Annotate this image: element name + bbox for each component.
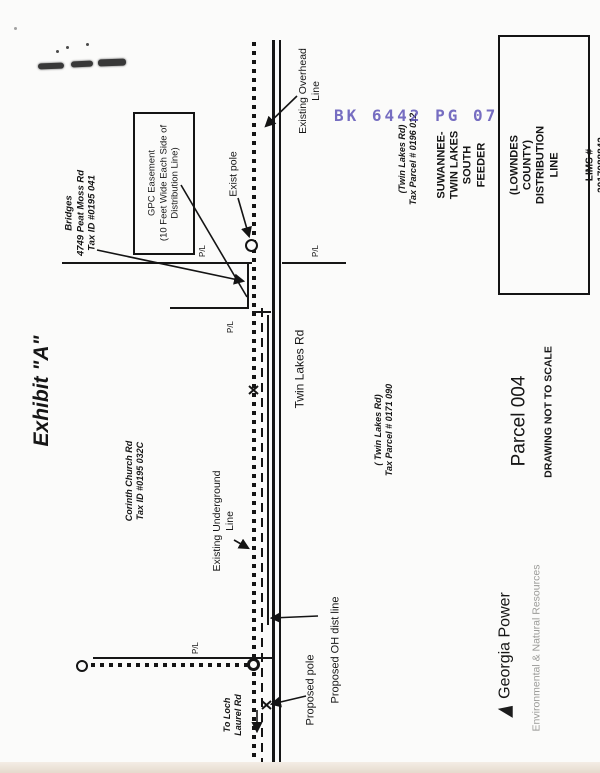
scale-note-label: DRAWING NOT TO SCALE — [543, 346, 556, 478]
title-block-line1: SUWANNEE-TWIN LAKES SOUTH FEEDER — [435, 126, 489, 204]
tax-parcel-0171-label: ( Twin Lakes Rd) Tax Parcel # 0171 090 — [373, 384, 395, 476]
property-line-label: P/L — [226, 321, 236, 333]
proposed-oh-dist-line-label: Proposed OH dist line — [329, 597, 342, 704]
twin-lakes-rd-label: Twin Lakes Rd — [293, 330, 308, 409]
gpc-easement-label: GPC Easement (10 Feet Wide Each Side of … — [147, 125, 182, 241]
title-block-line2: (LOWNDES COUNTY) DISTRIBUTION LINE — [508, 126, 562, 204]
georgia-power-triangle-icon — [497, 706, 512, 718]
title-block-line3: LIMS # 2017088842 — [585, 126, 600, 204]
recording-stamp: BK 6442 PG 07 — [334, 106, 498, 125]
to-loch-laurel-rd-label: To Loch Laurel Rd — [222, 694, 244, 736]
bridges-parcel-label: Bridges 4749 Peat Moss Rd Tax ID #0195 0… — [64, 170, 99, 256]
division-label: Environmental & Natural Resources — [531, 565, 544, 732]
title-block-text: SUWANNEE-TWIN LAKES SOUTH FEEDER (LOWNDE… — [416, 126, 600, 204]
existing-overhead-line-label: Existing Overhead Line — [297, 48, 323, 134]
exist-pole-label: Exist pole — [228, 151, 241, 197]
property-line-label: P/L — [191, 642, 201, 654]
property-line-label: P/L — [311, 245, 321, 257]
parcel-number-label: Parcel 004 — [507, 376, 530, 467]
proposed-pole-label: Proposed pole — [304, 655, 317, 726]
brand-name: Georgia Power — [495, 592, 515, 699]
existing-underground-line-label: Existing Underground Line — [211, 471, 237, 572]
scan-edge-band — [0, 762, 600, 773]
corinth-church-parcel-label: Corinth Church Rd Tax ID #0195 032C — [124, 441, 146, 522]
georgia-power-brand: Georgia Power — [476, 592, 535, 718]
property-line-label: P/L — [198, 245, 208, 257]
